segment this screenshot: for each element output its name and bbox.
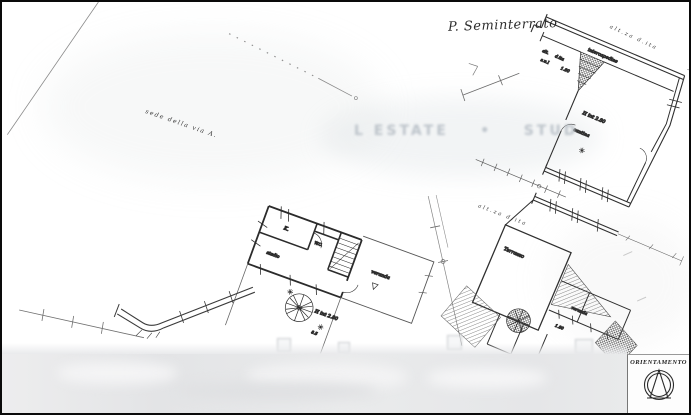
alt-above-plan3-label: alt.za d.ita [477, 203, 528, 227]
compass-icon [637, 366, 681, 406]
dita-small-label: d.ita [554, 53, 565, 61]
orientation-box: ORIENTAMENTO [627, 354, 689, 413]
floorplan-scan: intercapedine alt. d.ita s.u.l 1.80 H in… [0, 0, 691, 415]
plan1-basement: intercapedine alt. d.ita s.u.l 1.80 H in… [481, 3, 689, 228]
watermark-text: L ESTATE • STUD [354, 123, 578, 139]
spiral-stair-icon [503, 305, 534, 336]
orientation-label: ORIENTAMENTO [628, 359, 689, 366]
veranda-label: veranda [370, 269, 391, 281]
terrazzo-label: Terrazzo [503, 246, 525, 260]
alt-top-right-label: alt.za d.ita [609, 24, 659, 52]
kitchen-label: K. [282, 225, 290, 233]
sul-small-label: s.u.l [540, 57, 551, 65]
dim-85-label: 8.5 [311, 329, 319, 336]
room-height-label: H int 2.80 [581, 110, 607, 125]
studio-label: studio [266, 251, 281, 260]
spiral-stair-icon [281, 290, 317, 326]
dim-180-label: 1.80 [554, 323, 565, 331]
blurred-strip [2, 354, 627, 415]
plan2-ramp-wing [114, 287, 255, 338]
dim-180-label: 1.80 [560, 66, 571, 74]
alt-small-label: alt. [542, 48, 550, 55]
sede-via-label: sede della via A. [144, 108, 218, 139]
